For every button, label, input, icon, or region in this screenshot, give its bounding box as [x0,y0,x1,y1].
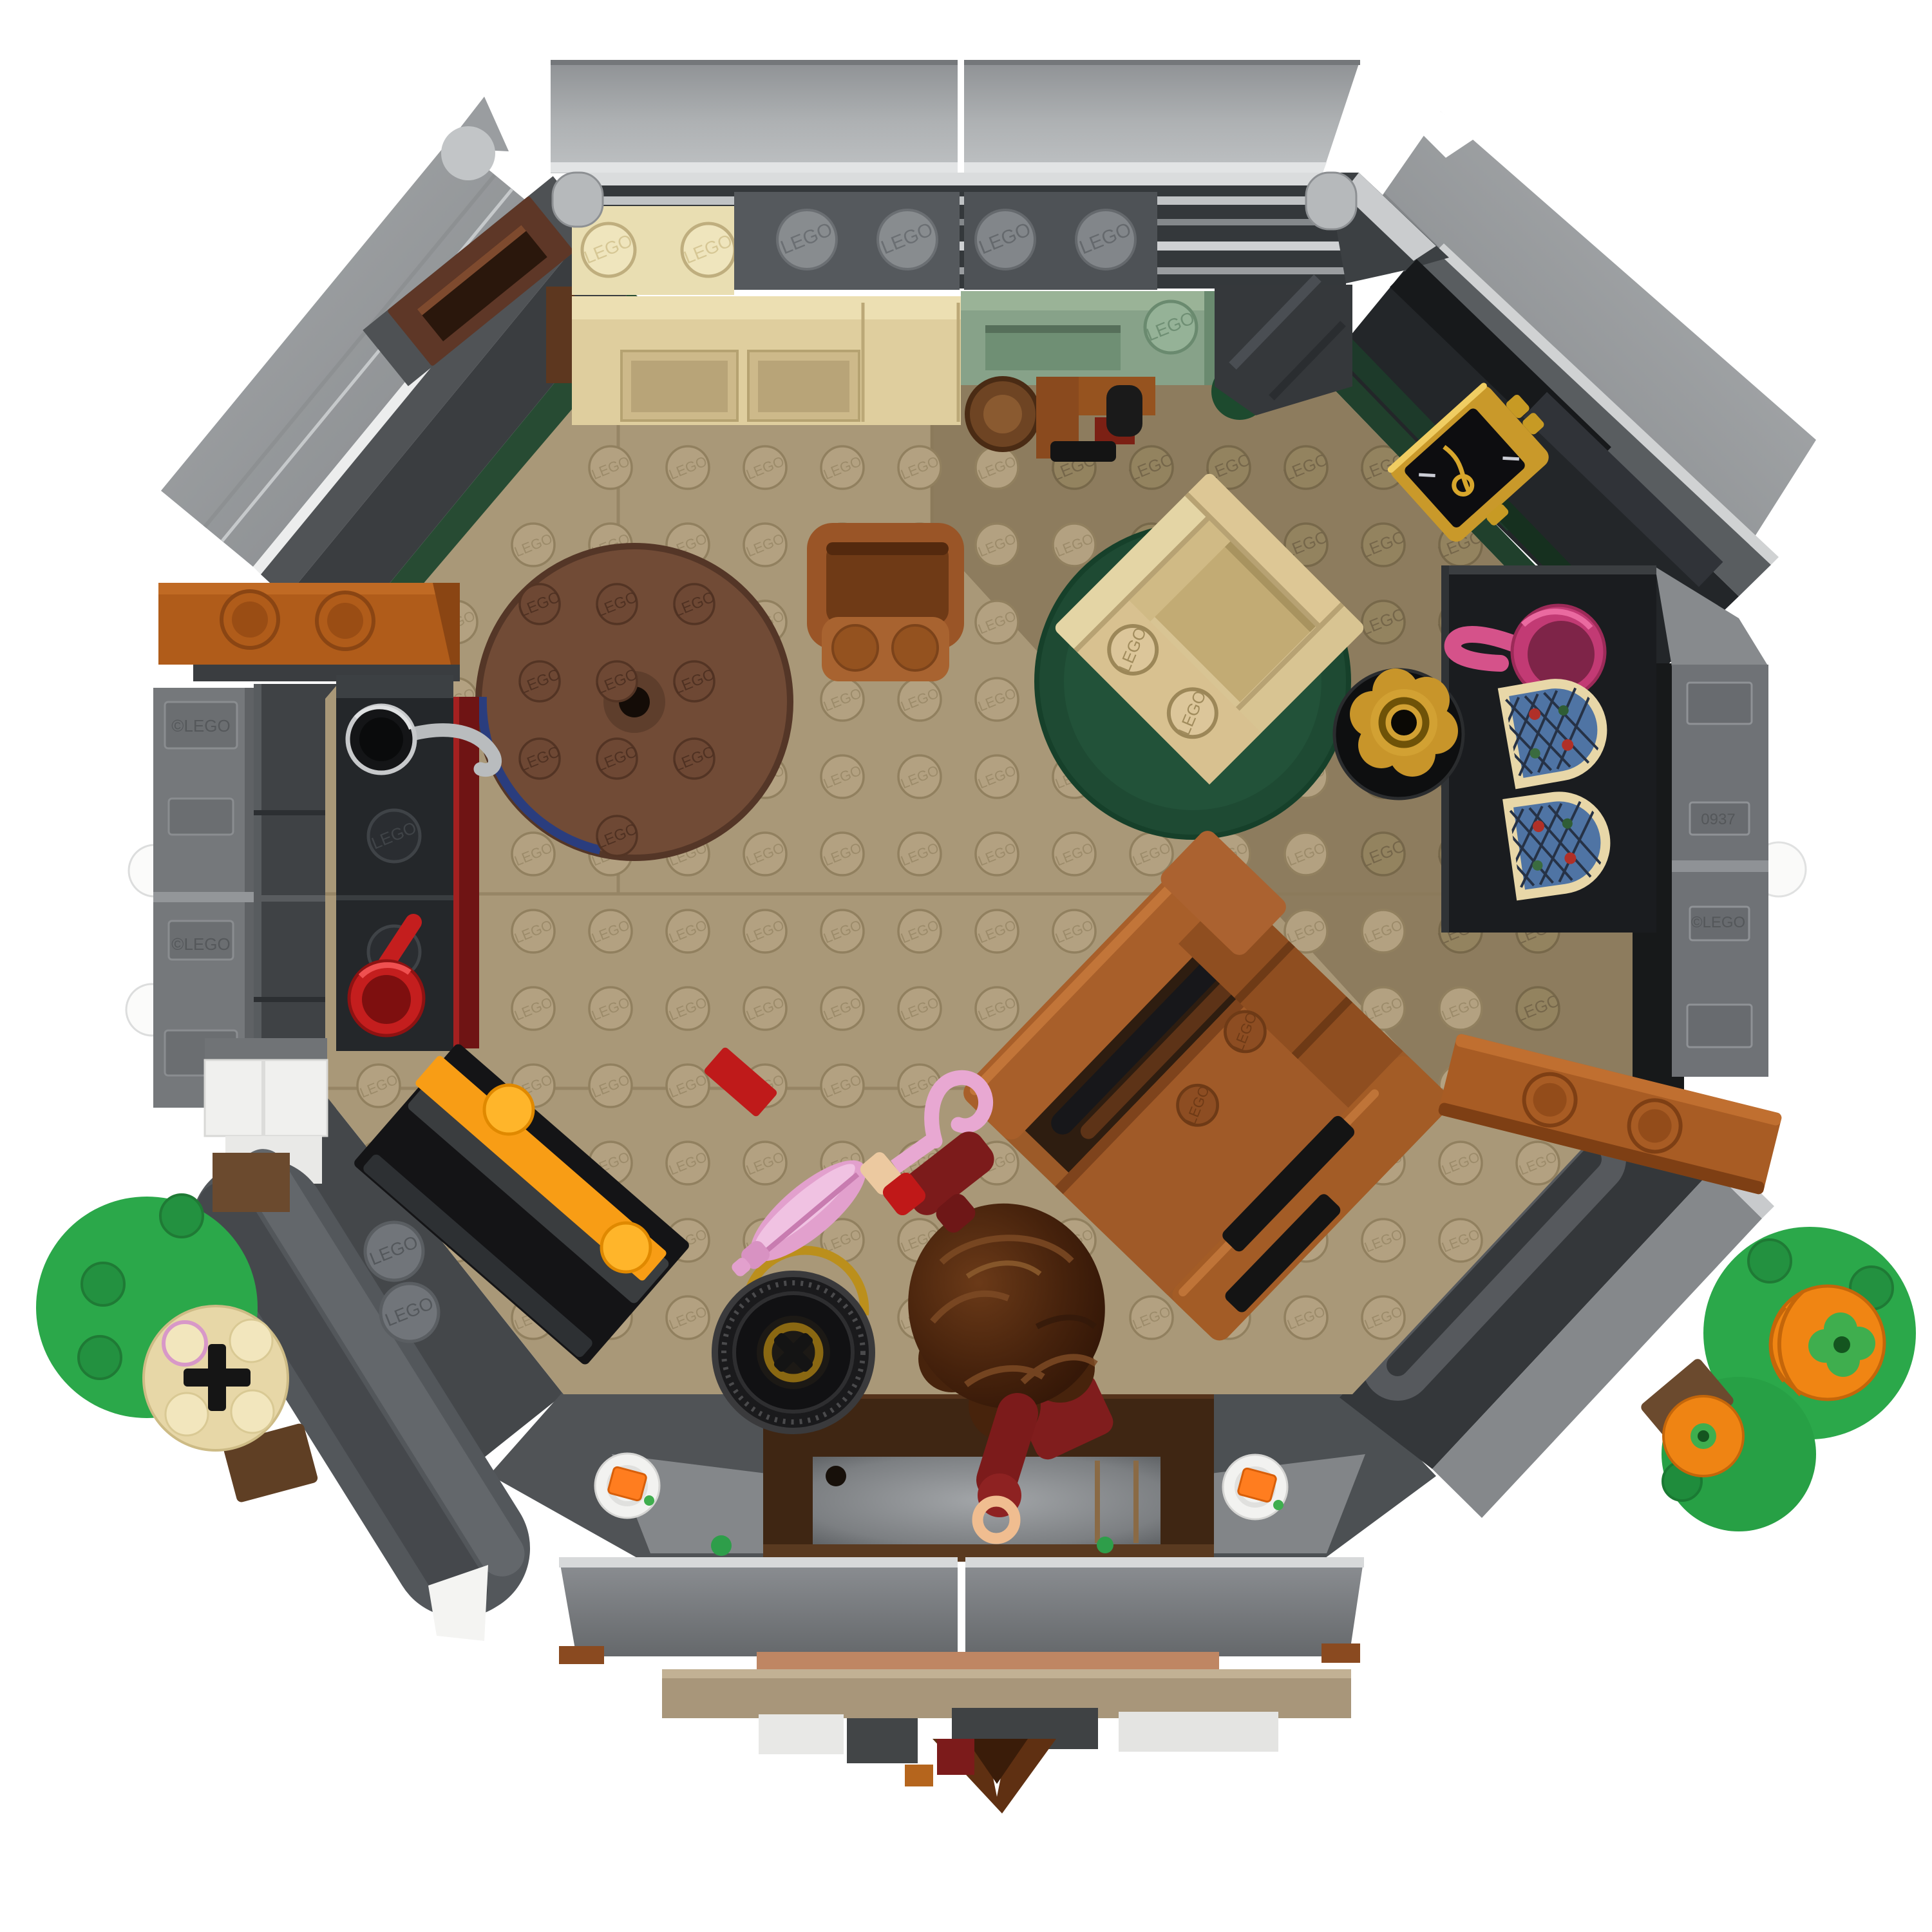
svg-text:©LEGO: ©LEGO [1691,914,1745,931]
svg-text:©LEGO: ©LEGO [171,934,230,954]
svg-text:0937: 0937 [1701,811,1735,828]
svg-text:©LEGO: ©LEGO [171,716,230,735]
